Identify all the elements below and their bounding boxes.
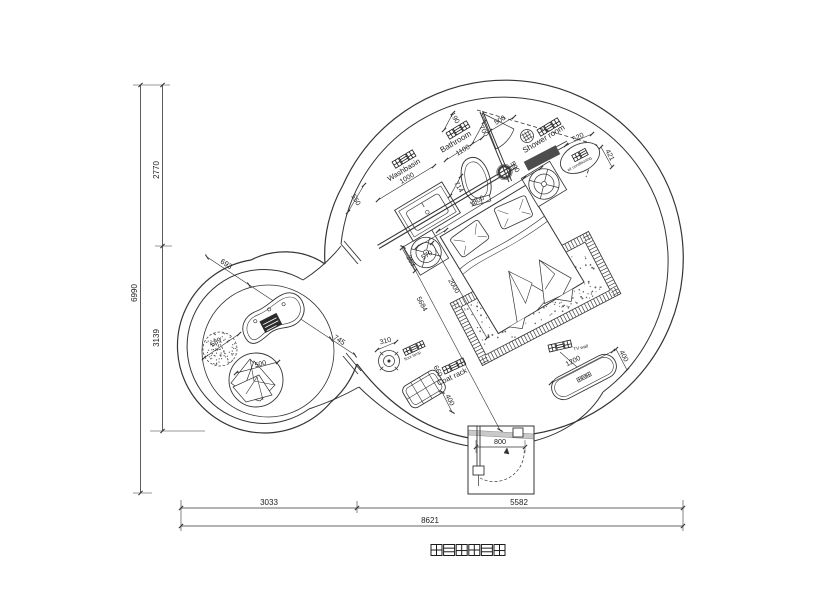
svg-text:6990: 6990 (130, 284, 139, 302)
svg-text:800: 800 (494, 437, 506, 446)
svg-text:3139: 3139 (152, 329, 161, 347)
svg-text:8621: 8621 (421, 516, 439, 525)
svg-text:2770: 2770 (152, 161, 161, 179)
svg-text:5582: 5582 (510, 498, 528, 507)
svg-text:3033: 3033 (260, 498, 278, 507)
